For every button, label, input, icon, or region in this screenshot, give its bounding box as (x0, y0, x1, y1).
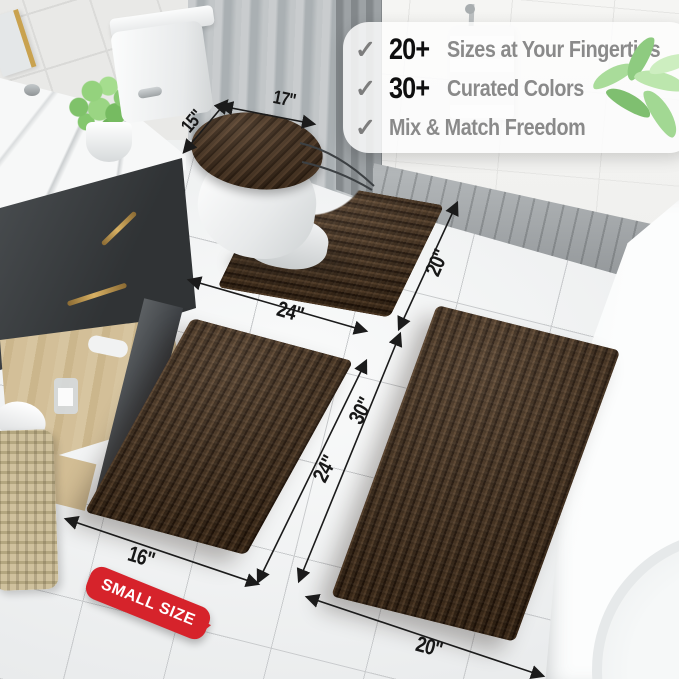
feature-number: 20+ (389, 33, 438, 67)
woven-basket (0, 429, 59, 591)
rail-knob (465, 4, 475, 14)
faucet (24, 84, 40, 96)
rinse-bottle (54, 378, 78, 414)
bathtub-rim (592, 530, 679, 679)
feature-number: 30+ (389, 72, 438, 106)
check-icon: ✓ (355, 35, 389, 65)
feature-label: Mix & Match Freedom (389, 114, 585, 141)
feature-label: Curated Colors (447, 75, 584, 102)
toilet-tank (110, 20, 214, 124)
dim-label-lid-width: 17" (271, 87, 297, 113)
plant-pot (86, 122, 132, 162)
check-icon: ✓ (355, 74, 389, 104)
hanging-plant (588, 42, 679, 157)
bottle-label (58, 388, 73, 406)
product-image-bathroom-rug-set: 17" 15" 24" 20" 16" 24" 30" 20" ✓ 20+ Si… (0, 0, 679, 679)
check-icon: ✓ (355, 113, 389, 143)
